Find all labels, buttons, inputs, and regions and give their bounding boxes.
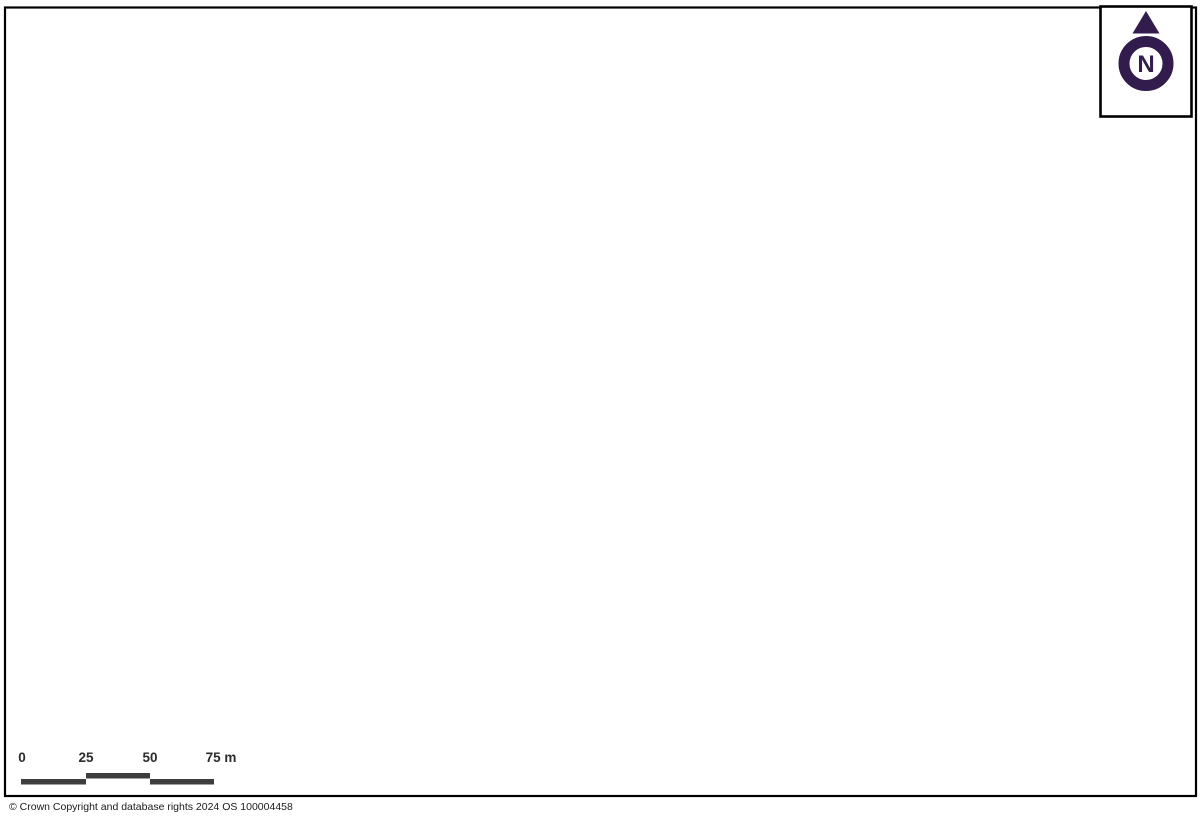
svg-text:50: 50 — [142, 750, 157, 765]
svg-text:0: 0 — [18, 750, 26, 765]
svg-text:N: N — [1137, 51, 1154, 78]
svg-text:75 m: 75 m — [206, 750, 237, 765]
svg-text:© Crown Copyright and database: © Crown Copyright and database rights 20… — [9, 801, 293, 813]
svg-text:25: 25 — [78, 750, 94, 765]
